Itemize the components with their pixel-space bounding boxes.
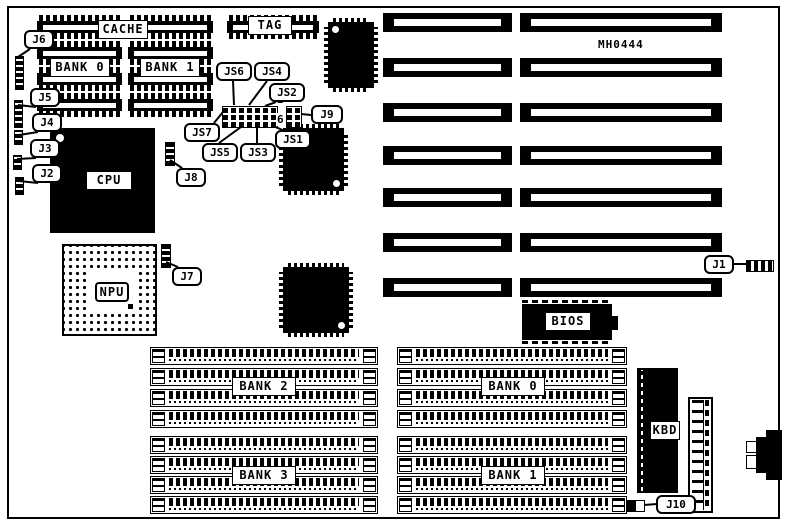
simm-bank1-label: BANK 1 — [481, 466, 545, 485]
cache-bank1-label: BANK 1 — [140, 58, 200, 77]
callout-tail — [19, 132, 38, 135]
simm-bank2-label: BANK 2 — [232, 377, 296, 396]
simm-bank3-label: BANK 3 — [232, 466, 296, 485]
j9-pin6-label: 6 — [277, 113, 285, 126]
j5-callout: J5 — [30, 88, 60, 107]
cache-bank0-label: BANK 0 — [50, 58, 110, 77]
j9-callout: J9 — [311, 105, 343, 124]
callout-tail — [233, 81, 234, 105]
js5-callout: JS5 — [202, 143, 238, 162]
js4-callout: JS4 — [254, 62, 290, 81]
j6-callout: J6 — [24, 30, 54, 49]
callout-tail — [265, 102, 276, 106]
callout-tail — [301, 114, 311, 115]
j8-callout: J8 — [176, 168, 206, 187]
js3-callout: JS3 — [240, 143, 276, 162]
board-part-number: MH0444 — [598, 38, 644, 51]
tag-label: TAG — [248, 16, 292, 35]
j2-callout: J2 — [32, 164, 62, 183]
cache-label: CACHE — [98, 20, 148, 39]
callout-tail — [214, 112, 223, 123]
simm-bank0-label: BANK 0 — [481, 377, 545, 396]
js6-callout: JS6 — [216, 62, 252, 81]
js1-callout: JS1 — [275, 130, 311, 149]
callout-tail — [170, 160, 182, 168]
j4-callout: J4 — [32, 113, 62, 132]
j10-callout: J10 — [656, 495, 696, 514]
callout-tail — [219, 127, 241, 143]
j7-callout: J7 — [172, 267, 202, 286]
j1-callout: J1 — [704, 255, 734, 274]
js7-callout: JS7 — [184, 123, 220, 142]
kbd-label: KBD — [650, 421, 680, 440]
bios-label: BIOS — [545, 312, 591, 331]
cpu-label: CPU — [86, 171, 132, 190]
js2-callout: JS2 — [269, 83, 305, 102]
callout-tail — [18, 49, 30, 57]
callout-tail — [249, 81, 267, 105]
motherboard-diagram: CACHE BANK 0 BANK 1 TAG CPU NPU 2 6 — [0, 0, 791, 527]
callout-tail — [17, 158, 36, 159]
j3-callout: J3 — [30, 139, 60, 158]
callout-tails — [0, 0, 791, 527]
